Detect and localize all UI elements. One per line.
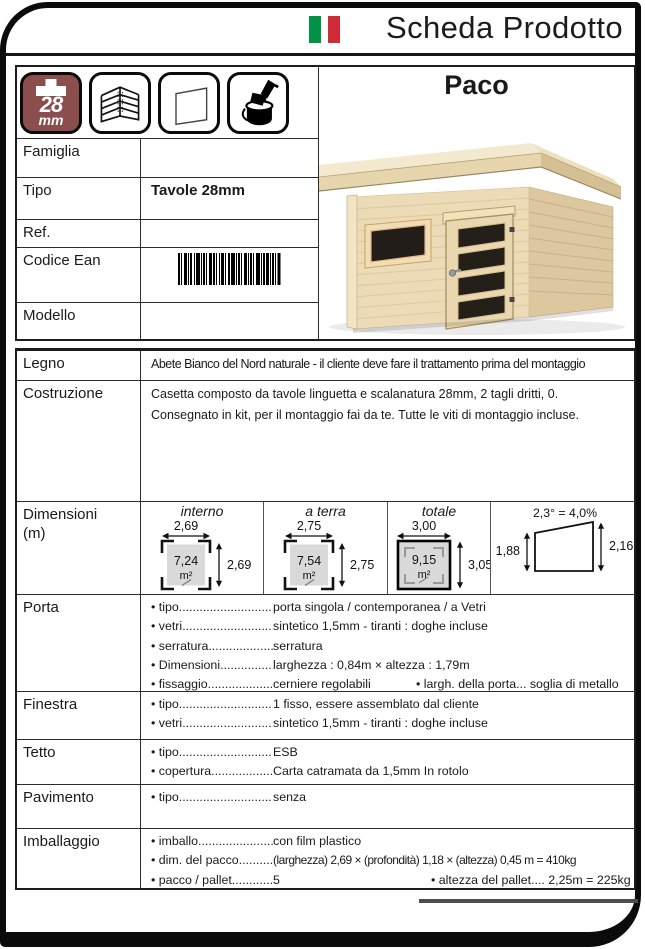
thickness-28mm-icon: 28 mm [20,72,82,134]
spec-line: • tipo................................ES… [151,743,634,762]
flag-red-stripe [328,16,340,43]
dim-slope: 2,3° = 4,0% 1,88 2,16 [491,502,634,594]
info-label-famiglia: Famiglia [17,139,141,178]
spec-line-label: • pacco / pallet................. [151,871,273,888]
info-table: 28 mm [15,65,636,341]
shed-corner-icon [89,72,151,134]
svg-text:1,88: 1,88 [496,544,520,558]
spec-line-label: • imballo........................... [151,832,273,851]
dim-interno: interno 2,69 7,24 m² [141,502,264,594]
roof-panel-icon [158,72,220,134]
product-photo-shed [319,101,633,339]
row-dimensioni: Dimensioni (m) interno 2,69 [17,501,634,594]
spec-table: Legno Abete Bianco del Nord naturale - i… [15,348,636,890]
dim-totale-diagram: 3,00 9,15 m² [388,519,490,594]
spec-line: • tipo................................po… [151,598,634,617]
svg-text:7,54: 7,54 [297,554,321,568]
spec-line: • tipo................................1 … [151,695,634,714]
row-tetto: Tetto • tipo............................… [17,739,634,784]
info-value-ref [141,220,319,248]
spec-line-extra: • largh. della porta... soglia di metall… [416,675,619,691]
tetto-label: Tetto [17,740,141,784]
italy-flag-icon [309,16,340,43]
spec-line-label: • vetri............................... [151,617,273,636]
header: Scheda Prodotto [6,8,635,56]
spec-line-value: (larghezza) 2,69 × (profondità) 1,18 × (… [273,853,576,867]
sheet-body: 28 mm [11,63,636,903]
spec-line-value: con film plastico [273,834,361,848]
spec-line-label: • Dimensioni..................... [151,656,273,675]
thickness-unit: mm [39,114,64,127]
dimensioni-label: Dimensioni (m) [17,502,141,594]
spec-line-value: senza [273,790,306,804]
svg-text:9,15: 9,15 [412,553,436,567]
info-value-codice-ean [141,248,319,303]
costruzione-line2: Consegnato in kit, per il montaggio fai … [151,405,634,426]
legno-value: Abete Bianco del Nord naturale - il clie… [151,354,634,375]
product-sheet-page: Scheda Prodotto 28 mm [0,2,641,947]
spec-line-label: • copertura....................... [151,762,273,781]
spec-line-label: • tipo................................ [151,788,273,807]
finestra-label: Finestra [17,692,141,739]
svg-text:2,75: 2,75 [297,519,321,533]
row-porta: Porta • tipo............................… [17,594,634,691]
spec-line-extra: • altezza del pallet.... 2,25m = 225kg [431,871,631,888]
costruzione-line1: Casetta composto da tavole linguetta e s… [151,384,634,405]
spec-line: • Dimensioni.....................larghez… [151,656,634,675]
info-label-tipo: Tipo [17,178,141,220]
svg-text:3,05: 3,05 [468,558,490,572]
spec-line-label: • fissaggio......................... [151,675,273,691]
spec-line-label: • vetri............................... [151,714,273,733]
spec-line: • imballo...........................con … [151,832,634,851]
svg-text:7,24: 7,24 [174,554,198,568]
row-legno: Legno Abete Bianco del Nord naturale - i… [17,351,634,380]
row-finestra: Finestra • tipo.........................… [17,691,634,739]
product-image-cell: Paco [319,67,634,339]
spec-line: • tipo................................se… [151,788,634,807]
legno-label: Legno [17,351,141,380]
svg-text:2,16: 2,16 [609,539,633,553]
flag-green-stripe [309,16,321,43]
spec-line-value: sintetico 1,5mm - tiranti : doghe inclus… [273,619,488,633]
dim-a-terra: a terra 2,75 7,54 m² [264,502,388,594]
pictogram-row: 28 mm [17,67,319,139]
spec-line-label: • serratura........................ [151,637,273,656]
spec-line-value: porta singola / contemporanea / a Vetri [273,600,486,614]
svg-text:2,3° = 4,0%: 2,3° = 4,0% [533,506,597,520]
spec-line: • vetri...............................si… [151,617,634,636]
info-label-codice-ean: Codice Ean [17,248,141,303]
svg-text:2,69: 2,69 [227,558,251,572]
spec-line: • serratura........................serra… [151,637,634,656]
svg-text:2,69: 2,69 [174,519,198,533]
dim-interno-diagram: 2,69 7,24 m² [141,519,263,594]
spec-line-value: cerniere regolabili [273,677,371,691]
spec-line-value: larghezza : 0,84m × altezza : 1,79m [273,658,470,672]
spec-line-value: sintetico 1,5mm - tiranti : doghe inclus… [273,716,488,730]
spec-line: • copertura.......................Carta … [151,762,634,781]
costruzione-label: Costruzione [17,381,141,501]
spec-line-label: • tipo................................ [151,598,273,617]
spec-line-value: 1 fisso, essere assemblato dal cliente [273,697,479,711]
spec-line-value: 5 [273,873,280,887]
spec-line: • vetri...............................si… [151,714,634,733]
dim-slope-diagram: 2,3° = 4,0% 1,88 2,16 [491,504,634,582]
pavimento-label: Pavimento [17,785,141,828]
spec-line-label: • dim. del pacco............... [151,851,273,870]
spec-line-label: • tipo................................ [151,695,273,714]
info-label-modello: Modello [17,303,141,339]
info-label-ref: Ref. [17,220,141,248]
dim-totale: totale 3,00 9,15 m² [388,502,491,594]
spec-line-value: ESB [273,745,298,759]
spec-line: • fissaggio.........................cern… [151,675,634,691]
porta-label: Porta [17,595,141,691]
info-value-modello [141,303,319,339]
thickness-value: 28 [40,96,62,114]
svg-text:2,75: 2,75 [350,558,374,572]
row-imballaggio: Imballaggio • imballo...................… [17,828,634,888]
dim-interno-title: interno [141,504,263,519]
spec-line-value: serratura [273,639,323,653]
svg-text:3,00: 3,00 [412,519,436,533]
row-costruzione: Costruzione Casetta composto da tavole l… [17,380,634,501]
imballaggio-label: Imballaggio [17,829,141,888]
info-value-famiglia [141,139,319,178]
dim-a-terra-title: a terra [264,504,387,519]
spec-line: • dim. del pacco...............(larghezz… [151,851,634,870]
table-bottom-shadow [419,899,638,903]
product-name: Paco [319,67,634,101]
spec-line: • pacco / pallet.................5• alte… [151,871,634,888]
spec-line-value: Carta catramata da 1,5mm In rotolo [273,764,469,778]
dim-totale-title: totale [388,504,490,519]
info-value-tipo: Tavole 28mm [141,178,319,220]
dim-a-terra-diagram: 2,75 7,54 m² [264,519,386,594]
ean-barcode-image [178,253,282,285]
spec-line-label: • tipo................................ [151,743,273,762]
page-title: Scheda Prodotto [386,10,623,46]
paint-bucket-icon [227,72,289,134]
row-pavimento: Pavimento • tipo........................… [17,784,634,828]
